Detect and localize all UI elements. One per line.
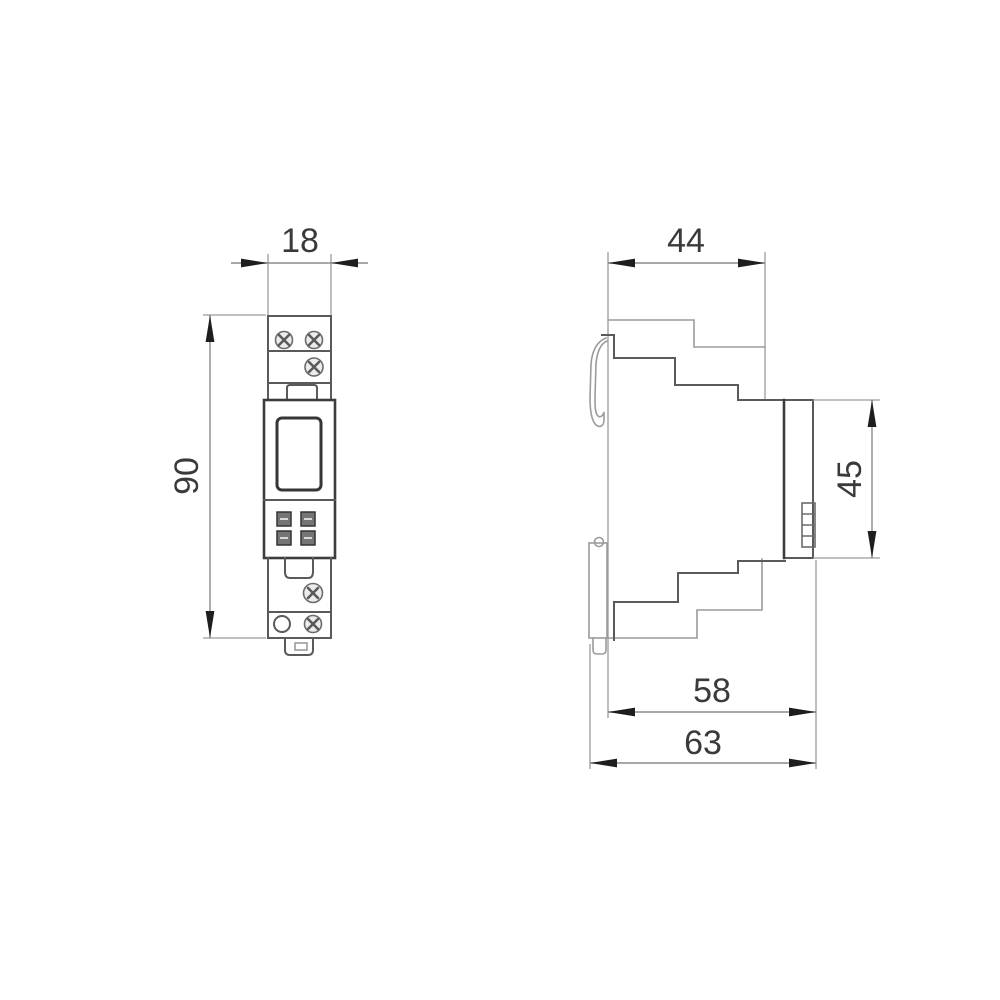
panel-outline	[784, 400, 813, 558]
din-clip-hook	[590, 338, 607, 426]
arrowhead-icon	[738, 259, 765, 268]
arrowhead-icon	[206, 611, 215, 638]
front-width-label: 18	[281, 222, 319, 260]
side-view: 44 45	[589, 222, 880, 769]
front-height-label: 90	[168, 457, 206, 495]
arrowhead-icon	[241, 259, 268, 268]
arrowhead-icon	[789, 759, 816, 768]
mount-depth-58-label: 58	[693, 672, 731, 710]
drawing-canvas: 18 90	[0, 0, 1000, 1000]
arrowhead-icon	[608, 708, 635, 717]
front-width-dimension: 18	[231, 222, 368, 315]
front-panel-block	[784, 400, 815, 558]
terminal-block-top	[268, 316, 331, 400]
arrowhead-icon	[608, 259, 635, 268]
front-height-dimension: 90	[168, 315, 266, 638]
bottom-clip-tab	[285, 638, 313, 655]
display-window	[277, 418, 321, 490]
din-clip-slider	[589, 538, 607, 655]
panel-height-45-label: 45	[831, 460, 869, 498]
face-bottom-tab	[285, 558, 313, 578]
screw-icon	[305, 358, 323, 376]
dimension-drawing-svg: 18 90	[0, 0, 1000, 1000]
arrowhead-icon	[206, 315, 215, 342]
terminal-hole	[274, 616, 290, 632]
arrowhead-icon	[789, 708, 816, 717]
panel-height-dimension-45: 45	[813, 400, 880, 558]
extension-lines	[608, 252, 765, 718]
bottom-clip-detail	[295, 643, 307, 650]
housing-bottom-outline	[614, 561, 785, 640]
side-depth-dimension-44: 44	[608, 222, 765, 718]
screw-icon	[304, 584, 323, 603]
side-depth-44-label: 44	[667, 222, 705, 260]
arrowhead-icon	[590, 759, 617, 768]
face-top-tab	[287, 385, 317, 400]
screw-icon	[306, 332, 323, 349]
arrowhead-icon	[868, 400, 877, 427]
keypad-buttons	[277, 512, 315, 545]
arrowhead-icon	[331, 259, 358, 268]
front-device-body	[264, 316, 335, 655]
arrowhead-icon	[868, 531, 877, 558]
overall-depth-63-label: 63	[684, 724, 722, 762]
housing-top-outline-light	[608, 320, 765, 347]
front-view: 18 90	[168, 222, 368, 655]
screw-icon	[305, 616, 322, 633]
extension-lines	[203, 315, 266, 638]
screw-icon	[276, 332, 293, 349]
